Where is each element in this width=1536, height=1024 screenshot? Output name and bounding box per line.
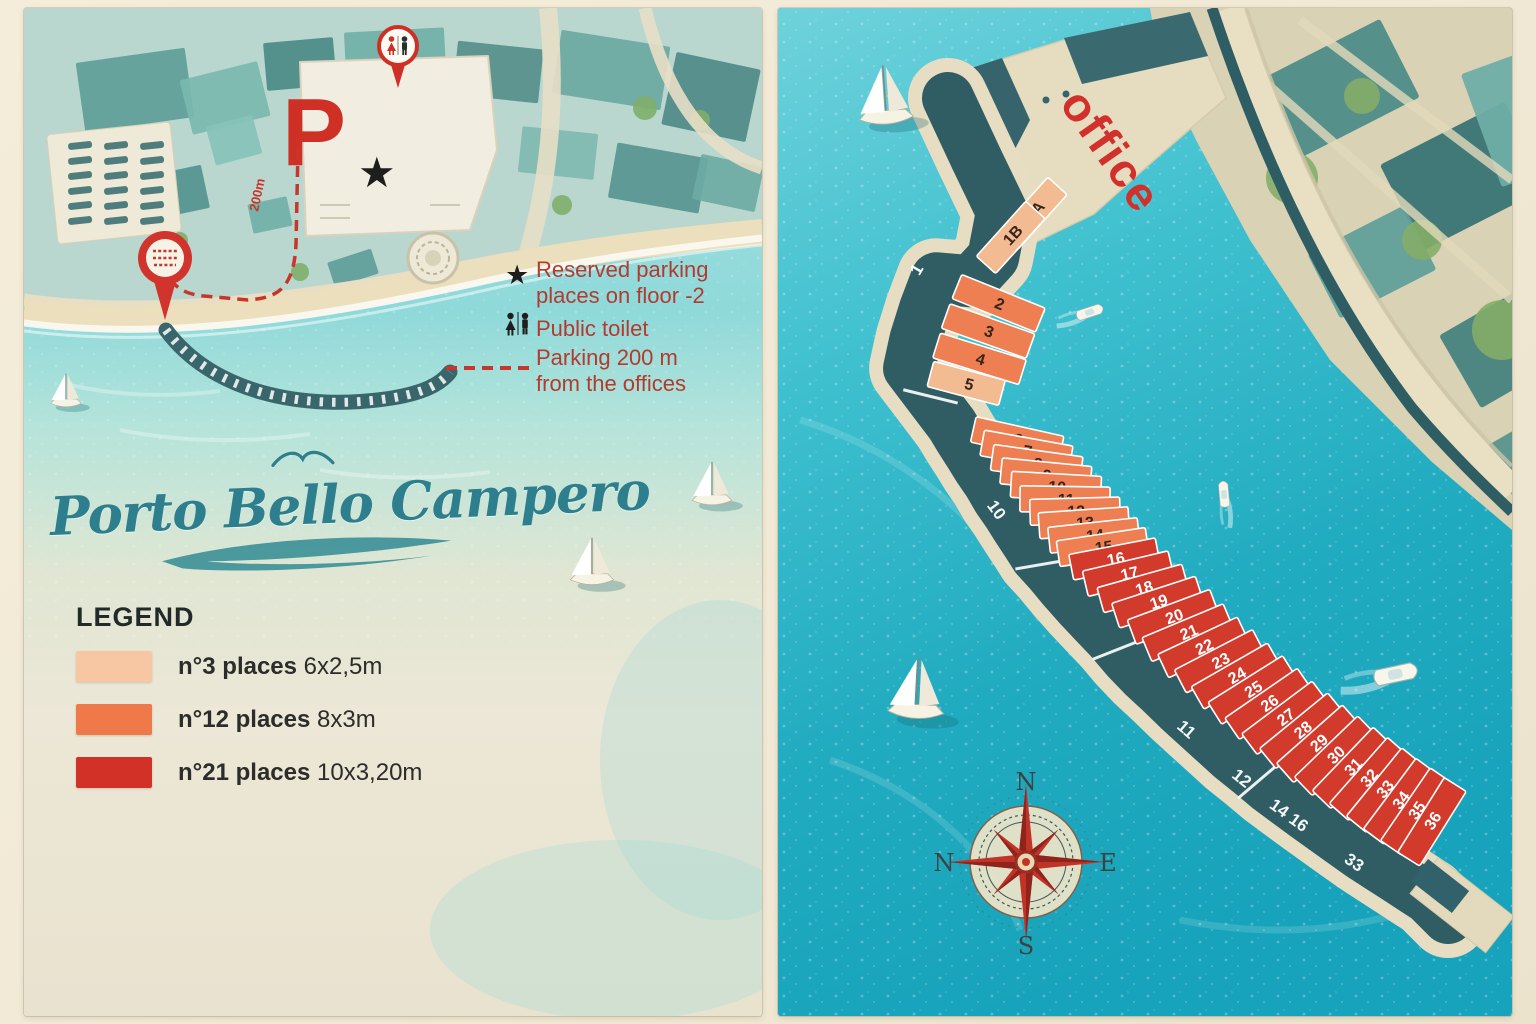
seagull-icon: [257, 442, 348, 472]
compass-east-label: E: [1099, 849, 1117, 877]
legend-row: n°3 places 6x2,5m: [76, 651, 422, 682]
key-line: Reserved parking: [536, 257, 708, 283]
dry-dock: [47, 122, 182, 244]
legend-swatch-small: [76, 651, 152, 682]
dashed-route-icon: [446, 366, 530, 370]
parking-letter: P: [282, 79, 346, 186]
roundabout: [408, 233, 458, 283]
compass-north-label: N: [1016, 768, 1037, 796]
right-marina-panel: office 1A1B23456789101112131415161718192…: [778, 8, 1512, 1016]
marina-map-art: office 1A1B23456789101112131415161718192…: [778, 8, 1512, 1016]
compass-west-label: N: [934, 849, 955, 877]
tree: [552, 195, 572, 215]
brand-title-block: Porto Bello Campero: [47, 433, 562, 589]
key-line: from the offices: [536, 371, 686, 397]
legend-row: n°12 places 8x3m: [76, 704, 422, 735]
map-key-parking-distance: Parking 200 m from the offices: [536, 345, 686, 398]
key-line: Public toilet: [536, 316, 649, 342]
legend-heading: LEGEND: [76, 602, 422, 633]
legend-label: n°21 places 10x3,20m: [178, 759, 422, 787]
legend: LEGEND n°3 places 6x2,5m n°12 places 8x3…: [76, 602, 422, 810]
legend-swatch-medium: [76, 704, 152, 735]
brand-name: Porto Bello Campero: [49, 464, 561, 548]
key-line: places on floor -2: [536, 283, 708, 309]
map-key-toilet: Public toilet: [536, 316, 649, 342]
parking-lot: P ★: [282, 56, 497, 236]
left-poster-panel: P ★ 200m ★: [24, 8, 762, 1016]
tree: [633, 96, 657, 120]
legend-label: n°3 places 6x2,5m: [178, 653, 382, 681]
qr-section: Scan the QR code to download the port re…: [24, 788, 762, 1016]
legend-swatch-large: [76, 757, 152, 788]
toilet-icon: [502, 309, 532, 339]
legend-row: n°21 places 10x3,20m: [76, 757, 422, 788]
reserved-star-marker: ★: [358, 149, 396, 196]
key-line: Parking 200 m: [536, 345, 686, 371]
map-key-reserved: Reserved parking places on floor -2: [536, 257, 708, 310]
star-icon: ★: [505, 260, 529, 291]
tree: [1344, 78, 1380, 114]
legend-label: n°12 places 8x3m: [178, 706, 376, 734]
compass-south-label: S: [1018, 932, 1034, 960]
